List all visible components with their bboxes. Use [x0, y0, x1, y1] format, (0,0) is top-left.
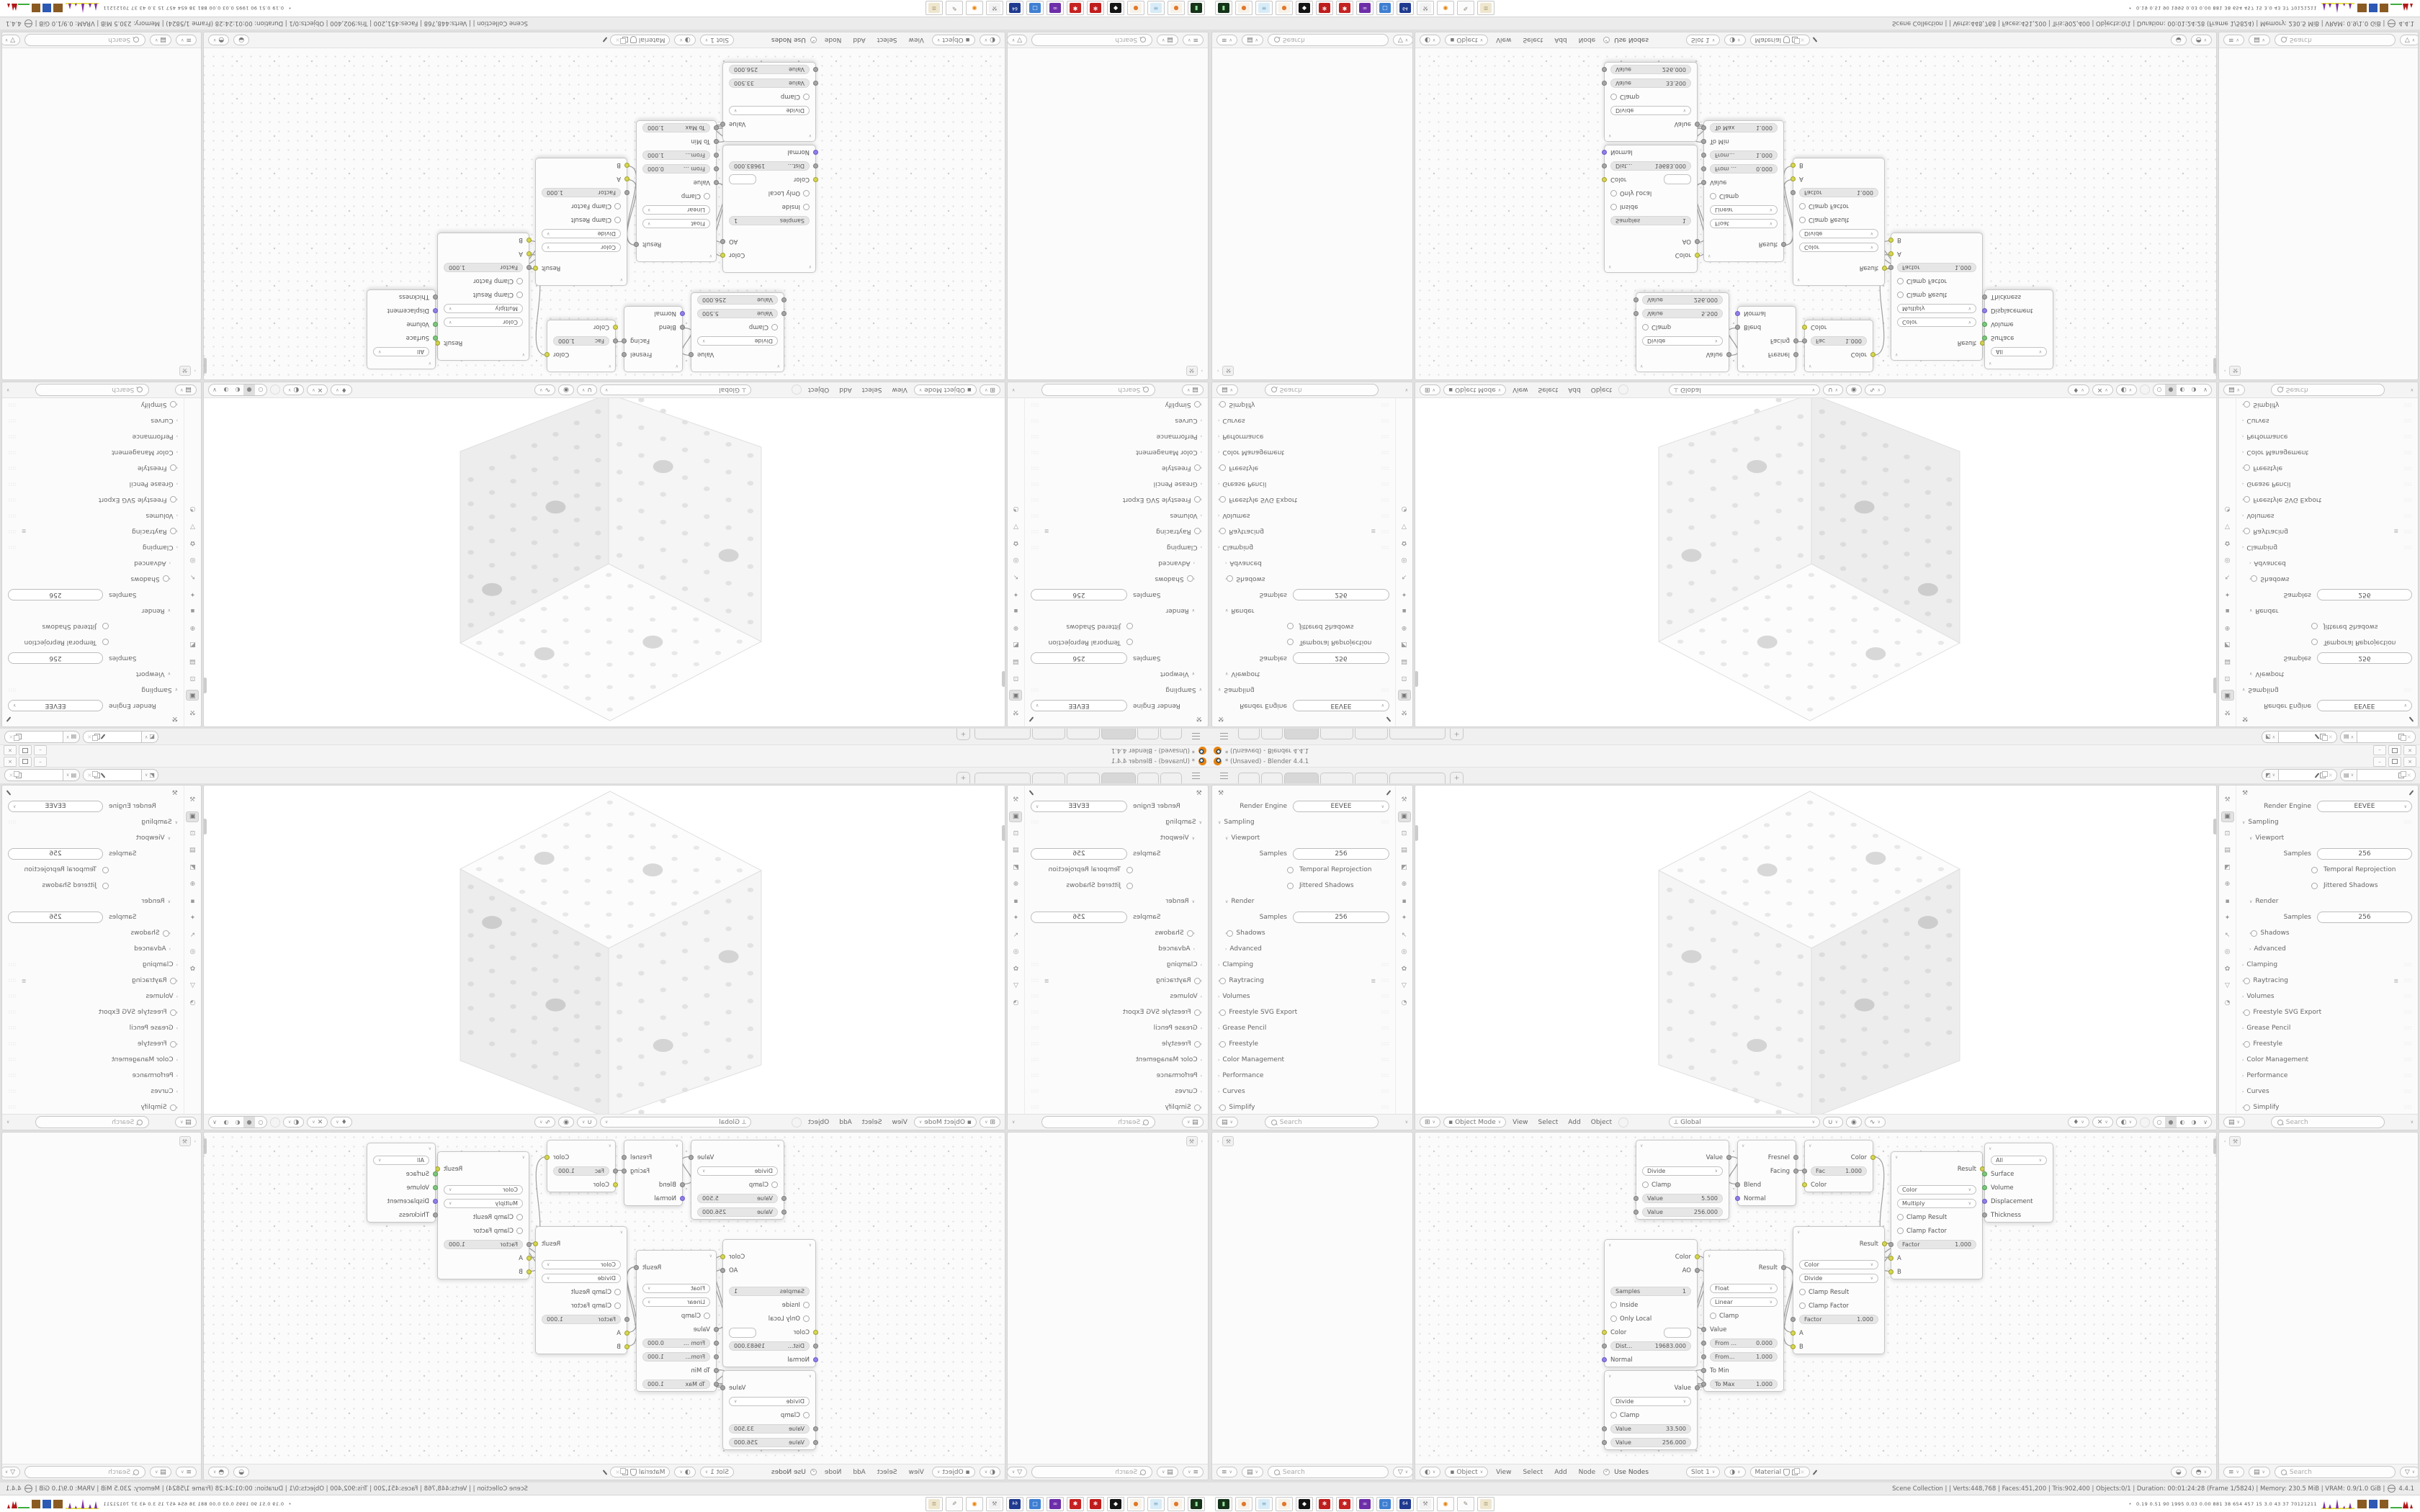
node-socket[interactable] [526, 265, 532, 270]
node-checkbox-clamp[interactable] [803, 1412, 810, 1418]
properties-row-shadows[interactable]: ›Shadows [1025, 571, 1208, 587]
viewlayer-name-field[interactable]: × [4, 731, 63, 743]
node-socket[interactable] [1781, 1265, 1786, 1270]
fake-user-icon[interactable] [630, 1469, 637, 1476]
panel-checkbox[interactable] [170, 497, 176, 503]
copy-icon[interactable] [2398, 734, 2404, 740]
properties-row-freestyle[interactable]: ›Freestyle∷∷ [1212, 1036, 1395, 1052]
properties-row-render[interactable]: ∨Render [2, 603, 184, 618]
menu-view[interactable]: View [888, 387, 910, 394]
panel-checkbox[interactable] [2244, 402, 2250, 408]
properties-row-shadows[interactable]: ›Shadows [2236, 925, 2418, 941]
properties-row-freestyle[interactable]: ›Freestyle∷∷ [1212, 460, 1395, 476]
node-socket[interactable] [1701, 1382, 1706, 1387]
node-value-value[interactable]: Value33.500 [1610, 1424, 1691, 1434]
node-dropdown-linear[interactable]: Linear∨ [1710, 1297, 1778, 1307]
menu-object[interactable]: Object [1587, 387, 1615, 394]
scene-selector[interactable]: ◩∨ × [2262, 769, 2337, 781]
copy-icon[interactable] [2398, 773, 2404, 778]
scrollbar-nub[interactable] [203, 358, 207, 374]
material-name-field[interactable]: Material × [1750, 35, 1810, 45]
properties-tab-physics[interactable]: ◎ [2221, 555, 2234, 566]
taskbar-app-notes[interactable]: ≡ [1255, 1497, 1273, 1511]
panel-checkbox[interactable] [1219, 978, 1226, 984]
node-value-to-max[interactable]: To Max1.000 [1710, 1380, 1778, 1389]
properties-row-jittered-shadows[interactable]: Jittered Shadows [1025, 878, 1208, 894]
node-socket[interactable] [1982, 336, 1987, 341]
node-socket[interactable] [622, 338, 627, 343]
panel-checkbox[interactable] [1219, 402, 1226, 408]
node-dropdown-divide[interactable]: Divide∨ [542, 1274, 621, 1283]
properties-row-volumes[interactable]: ›Volumes∷∷ [2236, 508, 2418, 523]
properties-row-volumes[interactable]: ›Volumes∷∷ [2236, 989, 2418, 1004]
menu-view[interactable]: View [1509, 1119, 1531, 1126]
node-dropdown-divide[interactable]: Divide∨ [1799, 229, 1878, 238]
taskbar-app-gimp[interactable]: ✎ [946, 1, 963, 16]
menu-node[interactable]: Node [821, 37, 846, 44]
node-checkbox-clamp-result[interactable] [516, 1214, 523, 1220]
shading-rendered-icon[interactable]: ◑ [2188, 1117, 2200, 1128]
taskbar-app-blender[interactable]: ◉ [966, 1, 983, 16]
property-value-field[interactable]: 256 [1293, 652, 1389, 664]
node-dropdown-divide[interactable]: Divide∨ [697, 336, 778, 346]
workspace-tab-1[interactable] [1238, 773, 1260, 783]
display-mode-dropdown[interactable]: ▤∨ [2249, 35, 2270, 45]
taskbar-app-inkscape[interactable]: ◆ [1296, 1, 1313, 16]
node-checkbox-clamp[interactable] [771, 1182, 778, 1188]
node-dropdown-color[interactable]: Color∨ [444, 1185, 523, 1194]
properties-row-curves[interactable]: ›Curves∷∷ [1212, 413, 1395, 428]
properties-tab-view-layer[interactable]: ▤ [1010, 845, 1023, 856]
node-socket[interactable] [526, 1242, 532, 1247]
node-socket[interactable] [433, 1171, 438, 1176]
shader-node-map-range[interactable]: ∨ResultFloat∨Linear∨ClampValueFrom ...0.… [1703, 1250, 1784, 1392]
node-socket[interactable] [1802, 1169, 1807, 1174]
mode-dropdown[interactable]: ▪Object Mode∨ [914, 1117, 977, 1128]
properties-row-grease-pencil[interactable]: ›Grease Pencil∷∷ [2, 476, 184, 492]
menu-select[interactable]: Select [1535, 387, 1562, 394]
node-dropdown-linear[interactable]: Linear∨ [1710, 205, 1778, 215]
properties-tab-output[interactable]: ⊡ [1398, 673, 1411, 684]
node-value-samples[interactable]: Samples1 [729, 1287, 810, 1296]
menu-object[interactable]: Object [805, 1119, 833, 1126]
properties-tab-world[interactable]: ⊕ [1010, 623, 1023, 634]
properties-row-grease-pencil[interactable]: ›Grease Pencil∷∷ [1212, 476, 1395, 492]
filter-funnel-dropdown[interactable]: ▽∨ [1393, 35, 1413, 45]
node-socket[interactable] [433, 1199, 438, 1204]
shading-material-icon[interactable]: ◐ [232, 384, 243, 395]
taskbar-app-display[interactable]: ▢ [1376, 1, 1394, 16]
viewport-object-menger-cube[interactable] [459, 390, 763, 722]
overlays-dropdown[interactable]: ◐∨ [283, 384, 304, 395]
node-socket[interactable] [680, 1182, 685, 1187]
node-value-dist-[interactable]: Dist...19683.000 [1610, 1341, 1691, 1351]
node-value-value[interactable]: Value256.000 [1642, 1207, 1723, 1217]
node-socket[interactable] [680, 1196, 685, 1201]
node-socket[interactable] [1602, 67, 1607, 72]
properties-row-sampling[interactable]: ∨Sampling∷∷ [2236, 814, 2418, 830]
node-checkbox-clamp[interactable] [1642, 1182, 1649, 1188]
properties-row-render-engine[interactable]: Render EngineEEVEE∨ [2236, 798, 2418, 814]
properties-tab-particles[interactable]: ↖ [1010, 572, 1023, 582]
workspace-tab-2[interactable] [1137, 729, 1159, 739]
viewlayer-selector[interactable]: ▤∨ × [2340, 731, 2416, 743]
unlink-icon[interactable]: × [2328, 734, 2333, 740]
shader-node-invert-color[interactable]: ∨ColorFac1.000Color [547, 320, 616, 372]
node-checkbox-clamp[interactable] [1642, 324, 1649, 330]
editor-type-button[interactable]: ⊞∨ [1420, 1117, 1440, 1128]
panel-checkbox[interactable] [170, 978, 176, 984]
panel-checkbox[interactable] [1187, 576, 1193, 582]
shading-solid-icon[interactable]: ● [2165, 1117, 2177, 1128]
shader-editor[interactable]: ∨ValueDivide∨ClampValue5.500Value256.000… [203, 1132, 1005, 1480]
node-value-value[interactable]: Value256.000 [729, 65, 810, 74]
property-value-field[interactable]: 256 [1031, 652, 1127, 664]
node-socket[interactable] [613, 1169, 618, 1174]
properties-row-color-management[interactable]: ›Color Management∷∷ [2, 1052, 184, 1068]
workspace-tab-6[interactable] [974, 729, 1031, 739]
transform-orientation-dropdown[interactable]: ⟂Global∨ [1669, 384, 1820, 395]
shader-node-mix-divide[interactable]: ∨ResultColor∨Divide∨Clamp ResultClamp Fa… [1793, 158, 1885, 286]
node-socket[interactable] [622, 1155, 627, 1160]
properties-tab-view-layer[interactable]: ▤ [1398, 657, 1411, 667]
overlays-dropdown[interactable]: ◐∨ [2116, 384, 2137, 395]
region-scroll-nub[interactable] [1002, 825, 1005, 841]
properties-tab-constraints[interactable]: ✿ [1398, 963, 1411, 974]
close-button[interactable]: × [4, 746, 17, 756]
panel-checkbox[interactable] [2244, 978, 2250, 984]
viewport-3d[interactable]: ⊞∨ ▪Object Mode∨ View Select Add Object … [203, 785, 1005, 1130]
properties-tab-render[interactable]: ▣ [187, 690, 200, 701]
node-dropdown-divide[interactable]: Divide∨ [1610, 1397, 1691, 1406]
properties-row-raytracing[interactable]: ›Raytracing≣∷∷ [2236, 523, 2418, 539]
shader-editor[interactable]: ∨ValueDivide∨ClampValue5.500Value256.000… [1415, 1132, 2217, 1480]
menu-object[interactable]: Object [1587, 1119, 1615, 1126]
menu-view[interactable]: View [1492, 1469, 1515, 1476]
shader-node-math-divide-2[interactable]: ∨ValueDivide∨ClampValue33.500Value256.00… [722, 62, 816, 142]
shader-node-ambient-occlusion[interactable]: ∨ColorAOSamples1InsideOnly LocalColorDis… [1604, 1239, 1698, 1367]
menu-select[interactable]: Select [859, 387, 886, 394]
node-socket[interactable] [526, 251, 532, 256]
mode-dropdown[interactable]: ▪Object Mode∨ [914, 384, 977, 395]
transform-orientation-dropdown[interactable]: ⟂Global∨ [1669, 1117, 1820, 1128]
node-socket[interactable] [1791, 1344, 1796, 1349]
node-socket[interactable] [1695, 239, 1700, 244]
scene-name-field[interactable]: × [2279, 731, 2337, 743]
node-socket[interactable] [1982, 1212, 1987, 1218]
scene-selector[interactable]: ◩∨ × [83, 769, 158, 781]
properties-row-samples[interactable]: Samples256 [2236, 846, 2418, 862]
node-checkbox-clamp-factor[interactable] [614, 203, 621, 210]
panel-checkbox[interactable] [1219, 465, 1226, 472]
node-dropdown-multiply[interactable]: Multiply∨ [444, 1199, 523, 1208]
taskbar-app-display[interactable]: ▢ [1026, 1, 1044, 16]
outliner-search-input[interactable]: Search [1268, 1466, 1389, 1478]
taskbar-app-inkscape[interactable]: ◆ [1296, 1497, 1313, 1511]
node-checkbox-inside[interactable] [1610, 1302, 1617, 1308]
properties-tab-physics[interactable]: ◎ [2221, 947, 2234, 958]
node-socket[interactable] [1695, 253, 1700, 258]
panel-checkbox[interactable] [1194, 978, 1201, 984]
properties-row-performance[interactable]: ›Performance∷∷ [1212, 428, 1395, 444]
collapse-chevron[interactable]: ∨ [6, 387, 9, 392]
taskbar-app-floppy-64[interactable]: 64 [1006, 1497, 1023, 1511]
pin-icon[interactable] [6, 716, 12, 721]
snap-toggle[interactable]: ∪∨ [1823, 1117, 1843, 1128]
properties-tab-object[interactable]: ▪ [187, 606, 200, 616]
properties-tab-output[interactable]: ⊡ [2221, 828, 2234, 839]
property-value-field[interactable]: 256 [2317, 589, 2412, 600]
node-checkbox-clamp-factor[interactable] [516, 1228, 523, 1234]
taskbar-app-firefox[interactable]: ● [1168, 1, 1185, 16]
properties-row-sampling[interactable]: ∨Sampling∷∷ [1212, 682, 1395, 698]
maximize-button[interactable] [2388, 746, 2401, 756]
snap-node-dropdown[interactable]: ◓∨ [208, 1467, 229, 1477]
node-value-value[interactable]: Value5.500 [697, 1194, 778, 1203]
properties-row-volumes[interactable]: ›Volumes∷∷ [1025, 508, 1208, 523]
shader-node-material-output[interactable]: ∨All∨SurfaceVolumeDisplacementThickness [367, 289, 436, 369]
properties-tab-modifiers[interactable]: ✦ [187, 913, 200, 924]
node-socket[interactable] [781, 1210, 786, 1215]
properties-tab-scene[interactable]: ◩ [2221, 639, 2234, 650]
node-socket[interactable] [544, 1155, 550, 1160]
panel-checkbox[interactable] [1126, 867, 1133, 873]
panel-checkbox[interactable] [1126, 883, 1133, 889]
panel-checkbox[interactable] [102, 624, 109, 630]
properties-row-freestyle-svg-export[interactable]: ›Freestyle SVG Export∷∷ [1212, 492, 1395, 508]
shading-options-chevron[interactable]: ∨ [2200, 1117, 2211, 1128]
node-checkbox-clamp[interactable] [771, 324, 778, 330]
material-browse-dropdown[interactable]: ◑∨ [1724, 35, 1745, 45]
properties-tab-render[interactable]: ▣ [2221, 811, 2234, 822]
properties-row-performance[interactable]: ›Performance∷∷ [1025, 428, 1208, 444]
node-socket[interactable] [813, 1426, 818, 1431]
material-slot-dropdown[interactable]: Slot 1∨ [700, 35, 734, 45]
properties-tab-view-layer[interactable]: ▤ [2221, 657, 2234, 667]
properties-row-viewport[interactable]: ∨Viewport [2236, 830, 2418, 846]
node-select-all[interactable]: All∨ [1991, 1156, 2047, 1165]
properties-tab-constraints[interactable]: ✿ [1010, 963, 1023, 974]
shader-node-layer-weight[interactable]: ∨FresnelFacingBlendNormal [624, 306, 683, 372]
node-socket[interactable] [622, 352, 627, 357]
node-value-samples[interactable]: Samples1 [1610, 1287, 1691, 1296]
scene-name-field[interactable]: × [83, 769, 141, 781]
pin-icon[interactable] [2409, 790, 2414, 795]
properties-tab-render[interactable]: ▣ [1010, 690, 1023, 701]
shader-type-dropdown[interactable]: ▪Object∨ [1445, 35, 1488, 45]
properties-tab-data[interactable]: ▽ [187, 981, 200, 991]
properties-tab-physics[interactable]: ◎ [1398, 555, 1411, 566]
taskbar-app-owl[interactable]: ∞ [1356, 1, 1373, 16]
shader-node-mix-multiply[interactable]: ∨ResultColor∨Multiply∨Clamp ResultClamp … [1891, 1151, 1983, 1279]
properties-tab-scene[interactable]: ◩ [1398, 862, 1411, 873]
taskbar-app-gimp[interactable]: ✎ [946, 1497, 963, 1511]
node-socket[interactable] [1633, 297, 1639, 302]
properties-row-samples[interactable]: Samples256 [1212, 846, 1395, 862]
panel-checkbox[interactable] [1194, 402, 1201, 408]
shader-editor[interactable]: ∨ValueDivide∨ClampValue5.500Value256.000… [1415, 32, 2217, 380]
panel-checkbox[interactable] [2244, 1009, 2250, 1016]
menu-node[interactable]: Node [1575, 1469, 1600, 1476]
properties-row-color-management[interactable]: ›Color Management∷∷ [1025, 444, 1208, 460]
unlink-icon[interactable]: × [615, 1469, 620, 1475]
properties-row-samples[interactable]: Samples256 [2236, 650, 2418, 666]
node-value-factor[interactable]: Factor1.000 [444, 1240, 523, 1249]
node-socket[interactable] [1701, 180, 1706, 185]
properties-row-temporal-reprojection[interactable]: Temporal Reprojection [2, 634, 184, 650]
properties-tab-scene[interactable]: ◩ [1398, 639, 1411, 650]
use-nodes-checkbox[interactable] [1603, 1469, 1610, 1475]
viewlayer-name-field[interactable]: × [2357, 769, 2416, 781]
taskbar-app-notes[interactable]: ≡ [1147, 1497, 1165, 1511]
properties-row-volumes[interactable]: ›Volumes∷∷ [1025, 989, 1208, 1004]
copy-icon[interactable] [94, 773, 100, 778]
workspace-tab-1[interactable] [1160, 729, 1182, 739]
properties-row-samples[interactable]: Samples256 [2236, 909, 2418, 925]
viewport-object-menger-cube[interactable] [1657, 390, 1961, 722]
taskbar-app-red-badge[interactable]: ✱ [1316, 1497, 1333, 1511]
properties-row-shadows[interactable]: ›Shadows [2236, 571, 2418, 587]
shader-node-math-divide-2[interactable]: ∨ValueDivide∨ClampValue33.500Value256.00… [1604, 62, 1698, 142]
properties-row-shadows[interactable]: ›Shadows [2, 925, 184, 941]
taskbar-app-scroll[interactable]: ≣ [926, 1, 943, 16]
shader-node-invert-color[interactable]: ∨ColorFac1.000Color [1804, 320, 1873, 372]
node-socket[interactable] [1888, 1256, 1894, 1261]
node-socket[interactable] [1888, 265, 1894, 270]
node-dropdown-color[interactable]: Color∨ [542, 243, 621, 252]
taskbar-app-blender[interactable]: ◉ [1437, 1, 1454, 16]
unlink-icon[interactable]: × [9, 734, 14, 740]
node-value-factor[interactable]: Factor1.000 [1799, 1315, 1878, 1324]
node-socket[interactable] [526, 1269, 532, 1274]
properties-row-advanced[interactable]: ›Advanced [2, 941, 184, 957]
close-button[interactable]: × [4, 757, 17, 767]
shading-options-chevron[interactable]: ∨ [209, 384, 220, 395]
node-socket[interactable] [533, 1241, 538, 1246]
property-dropdown[interactable]: EEVEE∨ [8, 700, 103, 711]
node-checkbox-clamp-factor[interactable] [1897, 278, 1904, 284]
node-value-from-[interactable]: From...1.000 [642, 1352, 710, 1362]
selectability-dropdown[interactable]: ♦∨ [331, 1117, 351, 1128]
node-checkbox-inside[interactable] [803, 1302, 810, 1308]
mode-dropdown[interactable]: ▪Object Mode∨ [1443, 384, 1506, 395]
outliner-search-input[interactable]: Search [2275, 34, 2396, 46]
shader-node-invert-color[interactable]: ∨ColorFac1.000Color [547, 1140, 616, 1192]
properties-search-input[interactable]: Search [1041, 1116, 1155, 1128]
workspace-tab-3[interactable] [1284, 773, 1319, 783]
node-socket[interactable] [813, 163, 818, 168]
properties-tab-world[interactable]: ⊕ [187, 879, 200, 890]
properties-row-raytracing[interactable]: ›Raytracing≣∷∷ [2, 523, 184, 539]
outliner-root-row[interactable]: ›⚒ [1212, 1133, 1412, 1150]
menu-add[interactable]: Add [1564, 387, 1584, 394]
scrollbar-nub[interactable] [2213, 358, 2217, 374]
shader-node-mix-divide[interactable]: ∨ResultColor∨Divide∨Clamp ResultClamp Fa… [1793, 1226, 1885, 1354]
property-value-field[interactable]: 256 [1031, 848, 1127, 860]
editor-type-button[interactable]: ▤∨ [175, 1117, 197, 1128]
panel-checkbox[interactable] [2311, 867, 2318, 873]
add-workspace-button[interactable]: + [956, 729, 970, 740]
properties-row-freestyle[interactable]: ›Freestyle∷∷ [1025, 460, 1208, 476]
properties-tab-particles[interactable]: ↖ [2221, 930, 2234, 940]
node-socket[interactable] [813, 67, 818, 72]
property-value-field[interactable]: 256 [2317, 652, 2412, 664]
minimize-button[interactable]: – [2373, 757, 2386, 767]
node-socket[interactable] [680, 311, 685, 316]
panel-checkbox[interactable] [1194, 1041, 1201, 1048]
editor-type-button[interactable]: ▤∨ [1216, 384, 1238, 395]
node-socket[interactable] [1982, 308, 1987, 313]
menu-add[interactable]: Add [1564, 1119, 1584, 1126]
node-socket[interactable] [781, 297, 786, 302]
panel-checkbox[interactable] [1227, 576, 1233, 582]
node-socket[interactable] [1602, 81, 1607, 86]
properties-row-shadows[interactable]: ›Shadows [2, 571, 184, 587]
properties-row-grease-pencil[interactable]: ›Grease Pencil∷∷ [1212, 1020, 1395, 1036]
panel-checkbox[interactable] [2311, 883, 2318, 889]
properties-row-volumes[interactable]: ›Volumes∷∷ [2, 508, 184, 523]
panel-checkbox[interactable] [1194, 1009, 1201, 1016]
node-socket[interactable] [813, 150, 818, 155]
minimize-button[interactable]: – [2373, 746, 2386, 756]
node-select-all[interactable]: All∨ [1991, 347, 2047, 356]
node-checkbox-only-local[interactable] [1610, 190, 1617, 197]
node-socket[interactable] [544, 352, 550, 357]
outliner-root-row[interactable]: ›⚒ [1008, 1133, 1208, 1150]
properties-search-input[interactable]: Search [1265, 1116, 1379, 1128]
menu-add[interactable]: Add [849, 37, 869, 44]
workspace-tab-2[interactable] [1261, 729, 1283, 739]
property-value-field[interactable]: 256 [8, 589, 103, 600]
taskbar-app-red-gear[interactable]: ✱ [1067, 1497, 1084, 1511]
properties-row-sampling[interactable]: ∨Sampling∷∷ [1025, 814, 1208, 830]
viewlayer-selector[interactable]: ▤∨ × [2340, 769, 2416, 781]
node-socket[interactable] [1701, 153, 1706, 158]
properties-tab-particles[interactable]: ↖ [187, 572, 200, 582]
properties-row-freestyle-svg-export[interactable]: ›Freestyle SVG Export∷∷ [1025, 1004, 1208, 1020]
minimize-button[interactable]: – [34, 746, 47, 756]
viewport-3d[interactable]: ⊞∨ ▪Object Mode∨ View Select Add Object … [1415, 382, 2217, 727]
node-socket[interactable] [1701, 125, 1706, 130]
node-socket[interactable] [613, 325, 618, 330]
node-socket[interactable] [622, 1169, 627, 1174]
node-value-to-max[interactable]: To Max1.000 [1710, 123, 1778, 132]
properties-row-freestyle-svg-export[interactable]: ›Freestyle SVG Export∷∷ [1212, 1004, 1395, 1020]
shader-node-layer-weight[interactable]: ∨FresnelFacingBlendNormal [1737, 306, 1796, 372]
properties-row-clamping[interactable]: ›Clamping∷∷ [2, 539, 184, 555]
node-dropdown-color[interactable]: Color∨ [1897, 318, 1976, 327]
panel-checkbox[interactable] [1194, 465, 1201, 472]
close-button[interactable]: × [2403, 757, 2416, 767]
properties-row-samples[interactable]: Samples256 [2, 587, 184, 603]
properties-tab-data[interactable]: ▽ [2221, 981, 2234, 991]
properties-row-clamping[interactable]: ›Clamping∷∷ [1025, 957, 1208, 973]
shader-node-math-divide-2[interactable]: ∨ValueDivide∨ClampValue33.500Value256.00… [722, 1370, 816, 1450]
copy-icon[interactable] [1792, 37, 1798, 43]
copy-icon[interactable] [622, 37, 628, 43]
shader-node-math-divide-1[interactable]: ∨ValueDivide∨ClampValue5.500Value256.000 [1636, 1140, 1729, 1220]
unlink-icon[interactable]: × [2406, 734, 2411, 740]
panel-checkbox[interactable] [1227, 930, 1233, 937]
node-socket[interactable] [689, 1155, 694, 1160]
proportional-edit-toggle[interactable]: ◉ [558, 384, 574, 395]
display-mode-dropdown[interactable]: ▤∨ [1242, 1467, 1263, 1477]
properties-row-viewport[interactable]: ∨Viewport [1212, 830, 1395, 846]
node-socket[interactable] [624, 190, 629, 195]
node-checkbox-clamp-result[interactable] [614, 217, 621, 223]
filter-funnel-dropdown[interactable]: ▽∨ [1, 35, 20, 45]
node-checkbox-clamp[interactable] [704, 1313, 710, 1319]
